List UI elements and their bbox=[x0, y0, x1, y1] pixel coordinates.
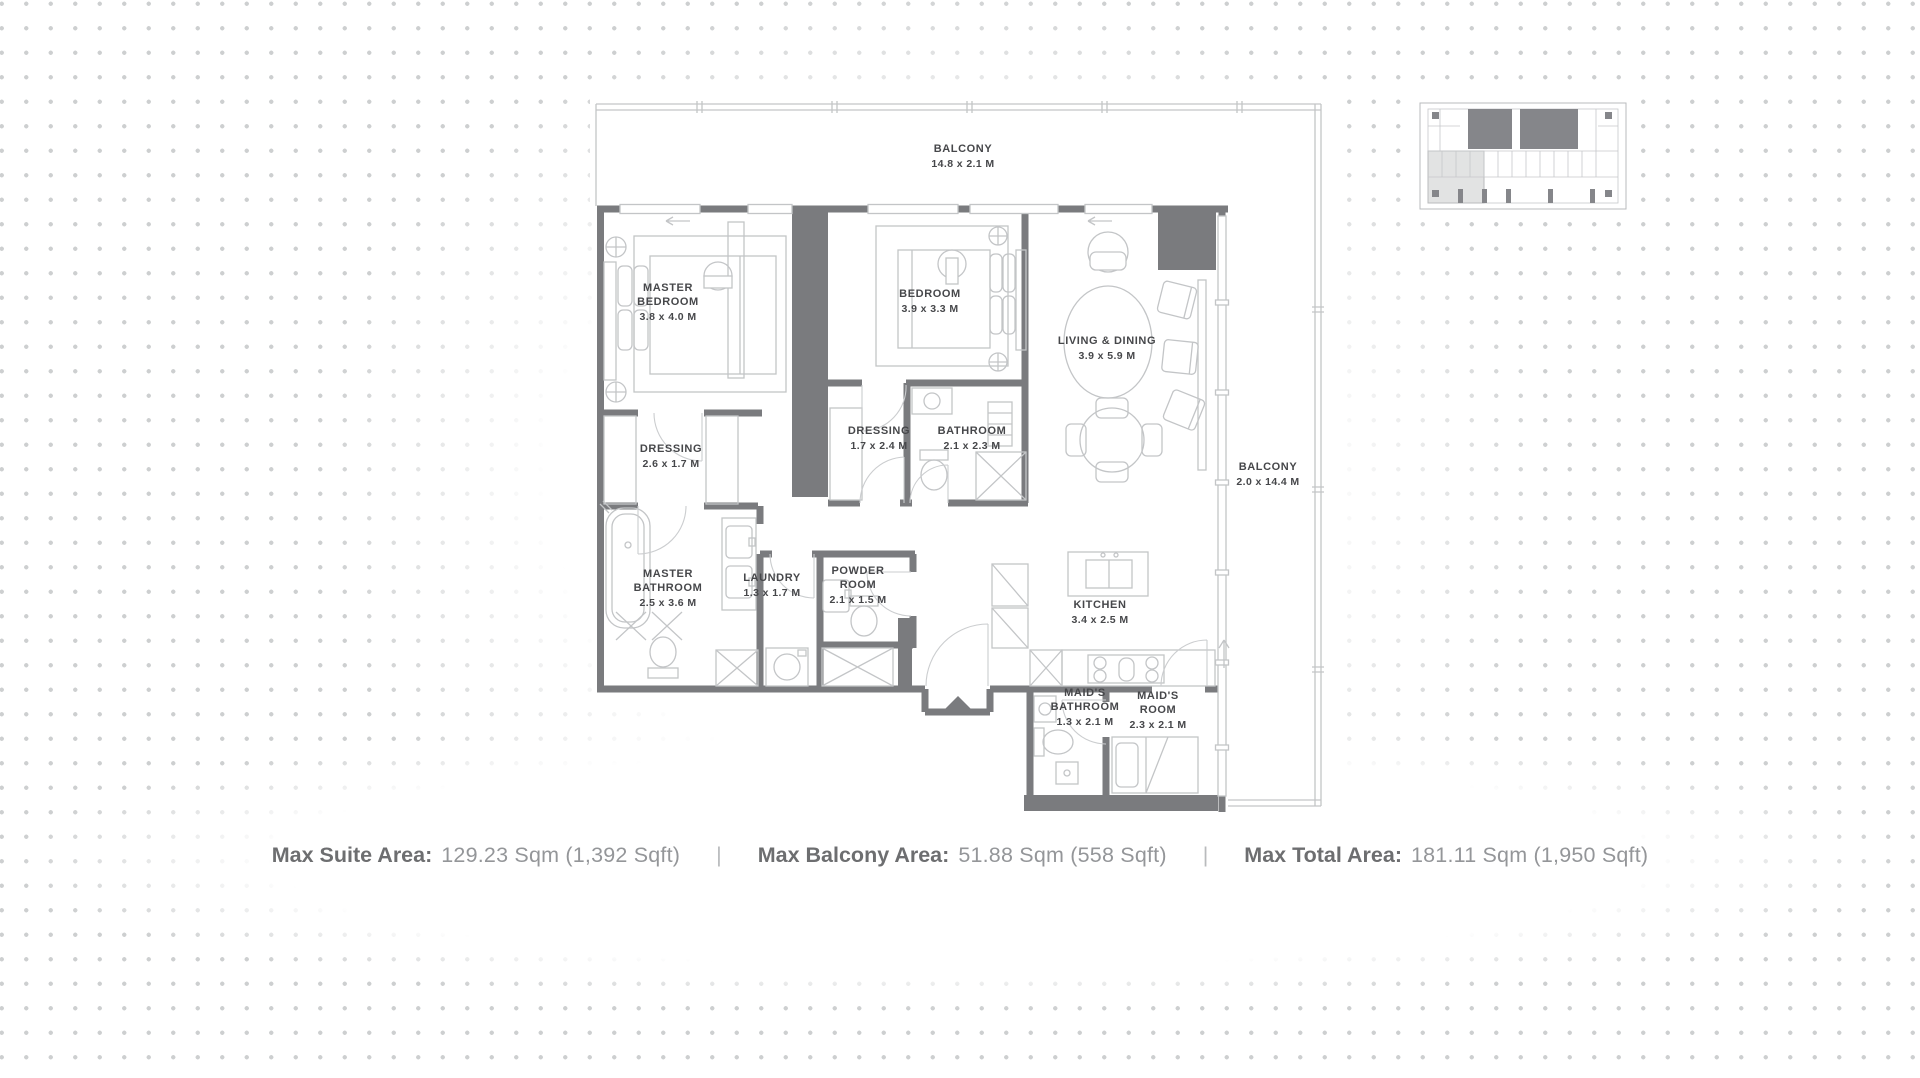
svg-text:3.9 x 3.3 M: 3.9 x 3.3 M bbox=[902, 303, 959, 315]
svg-text:3.9 x 5.9 M: 3.9 x 5.9 M bbox=[1079, 350, 1136, 362]
svg-text:14.8 x 2.1 M: 14.8 x 2.1 M bbox=[931, 158, 994, 170]
room-label-master-bedroom: MASTER bbox=[643, 282, 693, 294]
room-label-powder-room: POWDER bbox=[831, 565, 884, 577]
svg-text:2.1 x 1.5 M: 2.1 x 1.5 M bbox=[830, 594, 887, 606]
room-label-maids-room: MAID'S bbox=[1137, 690, 1179, 702]
key-plan bbox=[1412, 98, 1634, 216]
total-area-value: 181.11 Sqm (1,950 Sqft) bbox=[1411, 843, 1648, 867]
svg-text:ROOM: ROOM bbox=[840, 579, 877, 591]
svg-text:BEDROOM: BEDROOM bbox=[637, 296, 699, 308]
svg-text:BATHROOM: BATHROOM bbox=[1051, 701, 1120, 713]
room-label-laundry: LAUNDRY bbox=[743, 572, 801, 584]
room-label-bedroom: BEDROOM bbox=[899, 288, 961, 300]
svg-text:1.3 x 1.7 M: 1.3 x 1.7 M bbox=[744, 587, 801, 599]
svg-text:1.7 x 2.4 M: 1.7 x 2.4 M bbox=[851, 440, 908, 452]
svg-text:2.6 x 1.7 M: 2.6 x 1.7 M bbox=[643, 458, 700, 470]
balcony-area-value: 51.88 Sqm (558 Sqft) bbox=[958, 843, 1166, 867]
svg-text:2.3 x 2.1 M: 2.3 x 2.1 M bbox=[1130, 719, 1187, 731]
svg-text:BATHROOM: BATHROOM bbox=[634, 582, 703, 594]
suite-area-label: Max Suite Area: bbox=[272, 843, 433, 867]
room-label-bathroom: BATHROOM bbox=[938, 425, 1007, 437]
svg-text:2.0 x 14.4 M: 2.0 x 14.4 M bbox=[1236, 476, 1299, 488]
room-label-living-dining: LIVING & DINING bbox=[1058, 335, 1156, 347]
svg-text:3.4 x 2.5 M: 3.4 x 2.5 M bbox=[1072, 614, 1129, 626]
total-area-label: Max Total Area: bbox=[1244, 843, 1402, 867]
room-label-kitchen: KITCHEN bbox=[1073, 599, 1126, 611]
floor-plan: BALCONY 14.8 x 2.1 M MASTER BEDROOM 3.8 … bbox=[0, 0, 1920, 1078]
area-summary: Max Suite Area:129.23 Sqm (1,392 Sqft) |… bbox=[0, 843, 1920, 868]
balcony-area-stat: Max Balcony Area:51.88 Sqm (558 Sqft) bbox=[758, 843, 1167, 868]
room-label-dressing-master: DRESSING bbox=[640, 443, 702, 455]
room-label-master-bathroom: MASTER bbox=[643, 568, 693, 580]
room-label-dressing-bedroom: DRESSING bbox=[848, 425, 910, 437]
balcony-area-label: Max Balcony Area: bbox=[758, 843, 950, 867]
total-area-stat: Max Total Area:181.11 Sqm (1,950 Sqft) bbox=[1244, 843, 1648, 868]
separator: | bbox=[1203, 843, 1209, 868]
suite-area-stat: Max Suite Area:129.23 Sqm (1,392 Sqft) bbox=[272, 843, 680, 868]
room-label-balcony-side: BALCONY bbox=[1239, 461, 1298, 473]
svg-text:2.1 x 2.3 M: 2.1 x 2.3 M bbox=[944, 440, 1001, 452]
separator: | bbox=[716, 843, 722, 868]
room-label-balcony-top: BALCONY bbox=[934, 143, 993, 155]
flyer-page: BALCONY 14.8 x 2.1 M MASTER BEDROOM 3.8 … bbox=[0, 0, 1920, 1078]
svg-text:3.8 x 4.0 M: 3.8 x 4.0 M bbox=[640, 311, 697, 323]
room-label-maids-bathroom: MAID'S bbox=[1064, 687, 1106, 699]
svg-text:2.5 x 3.6 M: 2.5 x 3.6 M bbox=[640, 597, 697, 609]
svg-text:1.3 x 2.1 M: 1.3 x 2.1 M bbox=[1057, 716, 1114, 728]
suite-area-value: 129.23 Sqm (1,392 Sqft) bbox=[441, 843, 680, 867]
svg-text:ROOM: ROOM bbox=[1140, 704, 1177, 716]
